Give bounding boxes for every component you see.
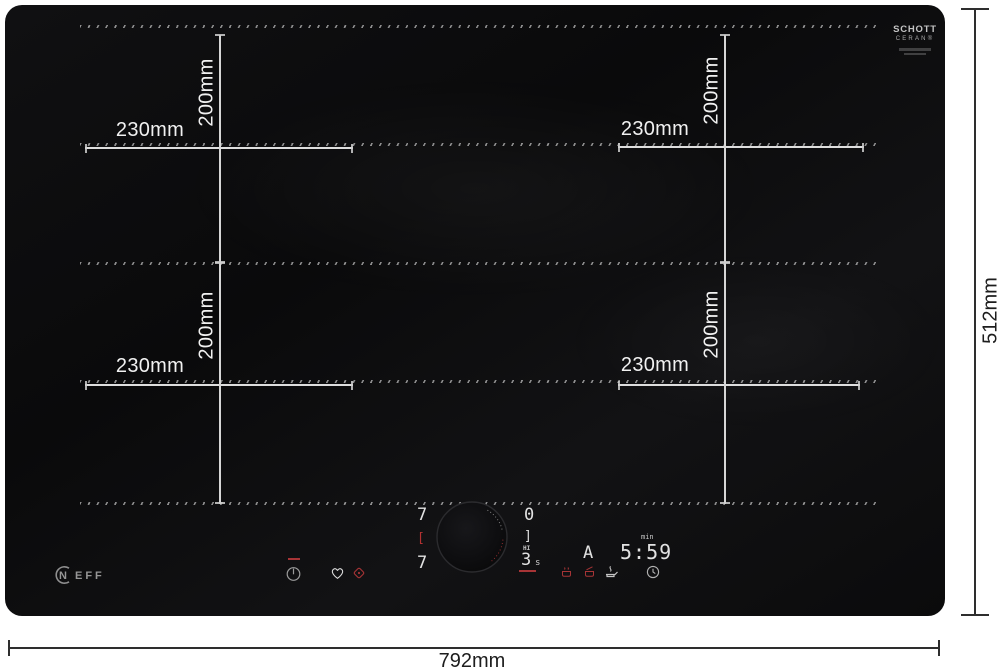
power-icon (285, 565, 302, 582)
dim-line-width-rear-right (618, 146, 864, 148)
zone-depth-label: 200mm (701, 270, 724, 380)
schott-text: SCHOTT (887, 24, 943, 35)
dim-end-tick (961, 614, 989, 616)
zone-marking-middle (80, 262, 878, 265)
zone-marking-rear (80, 25, 878, 28)
model-fine-print (899, 48, 931, 51)
timer-clock-icon (646, 565, 660, 579)
brand-letters: EFF (75, 570, 105, 582)
dim-end-tick (961, 8, 989, 10)
dim-line-depth-rear-right (724, 35, 726, 263)
rear-right-power-display: 0 (524, 505, 534, 525)
front-left-power-display: 7 (417, 553, 427, 573)
melt-icon (583, 565, 596, 578)
glass-brand-logo: SCHOTT CERAN® (887, 24, 943, 55)
zone-width-label: 230mm (600, 118, 710, 141)
cooktop-surface: 230mm 200mm 230mm 200mm 230mm 200mm 230m… (5, 5, 945, 616)
left-zone-link-indicator: [ (417, 531, 425, 546)
neff-logo: N EFF (53, 565, 115, 585)
overall-width-label: 792mm (402, 650, 542, 672)
selected-zone-underline (519, 570, 536, 572)
overall-depth-line (974, 9, 976, 615)
zone-width-label: 230mm (600, 354, 710, 377)
rear-left-power-display: 7 (417, 505, 427, 525)
model-fine-print (904, 53, 926, 55)
right-zone-link-indicator: ] (524, 529, 532, 544)
dim-line-width-front-right (618, 384, 860, 386)
dim-end-tick (8, 640, 10, 656)
dim-line-depth-front-left (219, 263, 221, 504)
front-right-power-display: 3 (521, 550, 531, 570)
product-diagram: 230mm 200mm 230mm 200mm 230mm 200mm 230m… (0, 0, 1000, 672)
zone-depth-label: 200mm (701, 36, 724, 146)
home-connect-icon (352, 566, 366, 580)
dim-line-depth-front-right (724, 263, 726, 504)
keep-warm-icon (560, 565, 573, 578)
dim-end-tick (938, 640, 940, 656)
ceran-text: CERAN® (887, 36, 943, 42)
power-unit-label: s (535, 558, 540, 568)
fry-sensor-icon (604, 562, 619, 578)
power-indicator-dash (288, 558, 300, 560)
zone-depth-label: 200mm (196, 271, 219, 381)
zone-depth-label: 200mm (196, 38, 219, 148)
overall-depth-label: 512mm (980, 256, 1000, 366)
dim-line-depth-rear-left (219, 35, 221, 263)
function-display: A (583, 543, 593, 563)
heart-icon (330, 566, 345, 580)
brand-initial: N (59, 570, 67, 582)
overall-width-line (8, 647, 940, 649)
zone-width-label: 230mm (95, 119, 205, 142)
zone-width-label: 230mm (95, 355, 205, 378)
twist-knob (434, 499, 510, 575)
timer-display: 5:59 (620, 540, 672, 564)
